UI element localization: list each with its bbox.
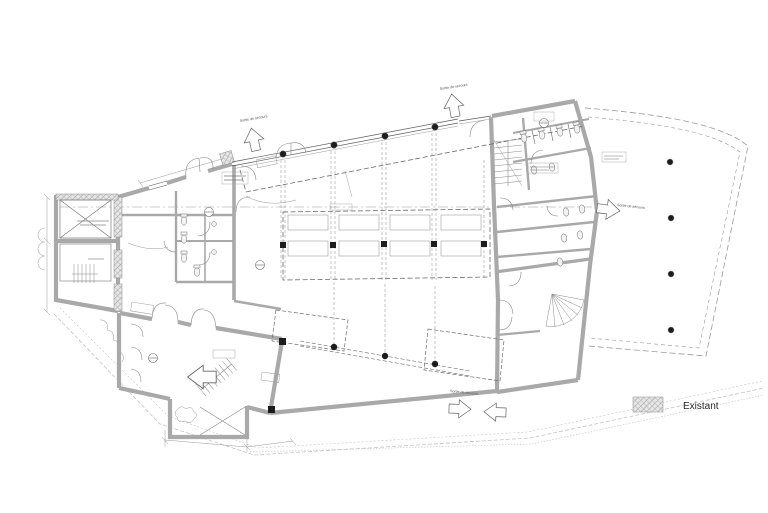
facade-column <box>382 133 388 139</box>
interior-column <box>432 361 438 367</box>
annotation-boxes <box>77 112 626 358</box>
interior-column <box>431 241 437 247</box>
facade-column <box>432 124 438 130</box>
wall-column <box>279 338 286 345</box>
level-marker <box>256 261 265 270</box>
door-arc <box>164 241 176 252</box>
door-arc <box>241 166 256 180</box>
exit-arrow <box>442 92 466 118</box>
interior-column <box>280 242 286 248</box>
door-arc <box>198 222 210 236</box>
interior-column <box>481 241 487 247</box>
door-arc <box>547 206 558 216</box>
facade-column <box>280 151 286 157</box>
level-marker <box>540 119 549 128</box>
door-arc <box>470 120 485 137</box>
terrace-columns <box>667 159 674 333</box>
exit-label: Sortie de secours <box>440 83 468 91</box>
building-walls <box>56 101 597 437</box>
terrace-column <box>667 159 673 165</box>
level-marker <box>149 354 158 363</box>
exit-arrows <box>188 92 622 421</box>
legend: Existant <box>633 397 719 412</box>
facade-column <box>331 142 337 148</box>
door-arc <box>236 197 250 212</box>
furniture <box>128 156 296 383</box>
exit-arrow <box>242 126 266 153</box>
door-arc <box>131 324 143 337</box>
door-arc <box>509 272 521 286</box>
door-arc <box>499 300 513 314</box>
interior-column <box>330 242 336 248</box>
curtain-wall <box>149 116 491 190</box>
door-arc <box>291 143 306 153</box>
exit-arrow <box>449 400 472 419</box>
exit-arrow <box>188 365 217 388</box>
exit-arrow <box>484 403 507 422</box>
wc-stall-dividers <box>532 124 571 144</box>
terrace-outline <box>585 108 748 356</box>
door-arc <box>152 303 178 322</box>
level-marker <box>205 208 214 217</box>
exit-label: Sortie de secours <box>617 203 645 210</box>
exit-label: Sortie de secours <box>239 114 267 123</box>
interior-column <box>331 344 337 350</box>
terrace-column <box>668 271 674 277</box>
interior-columns <box>268 241 487 413</box>
stairs-left-wing <box>72 264 98 283</box>
door-arc <box>191 309 216 328</box>
stairs-top-right <box>494 139 522 186</box>
spiral-stairs <box>546 294 584 327</box>
legend-label: Existant <box>683 401 719 412</box>
floor-plan-drawing: Sortie de secours Sortie de secours Sort… <box>0 0 768 513</box>
interior-column <box>382 353 388 359</box>
door-arc <box>131 369 141 382</box>
column-grid-lines <box>281 133 484 364</box>
hall-zone-panels <box>288 215 481 256</box>
terrace-column <box>668 215 674 221</box>
wall-column <box>268 406 275 413</box>
site-boundary-lines <box>54 308 764 455</box>
door-arc <box>131 347 142 360</box>
terrace-column <box>668 327 674 333</box>
floor-plan-canvas: Sortie de secours Sortie de secours Sort… <box>0 0 768 513</box>
interior-column <box>381 241 387 247</box>
exit-arrow <box>596 198 621 221</box>
legend-swatch <box>633 397 663 412</box>
door-arc <box>499 317 512 330</box>
door-arc <box>500 198 513 210</box>
